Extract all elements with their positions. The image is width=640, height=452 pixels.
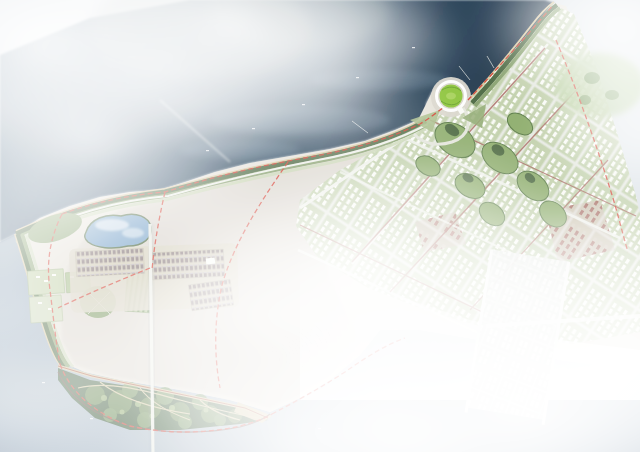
clouds-layer xyxy=(0,0,640,452)
haze-veil xyxy=(0,0,640,452)
map-canvas xyxy=(0,0,640,452)
masterplan-map-image xyxy=(0,0,640,452)
